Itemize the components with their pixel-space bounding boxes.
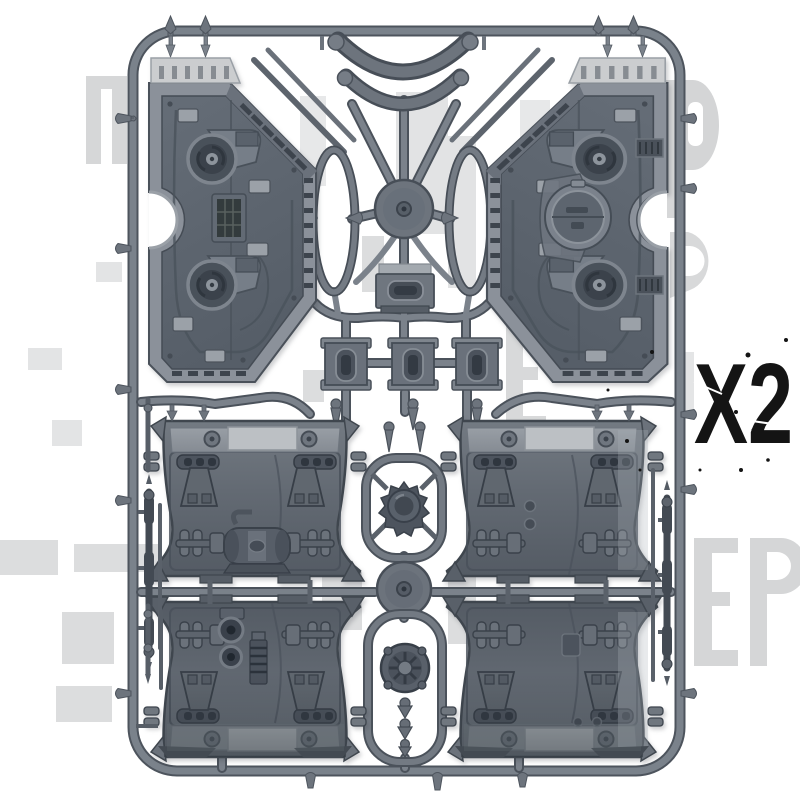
svg-text:X2: X2	[694, 341, 793, 468]
